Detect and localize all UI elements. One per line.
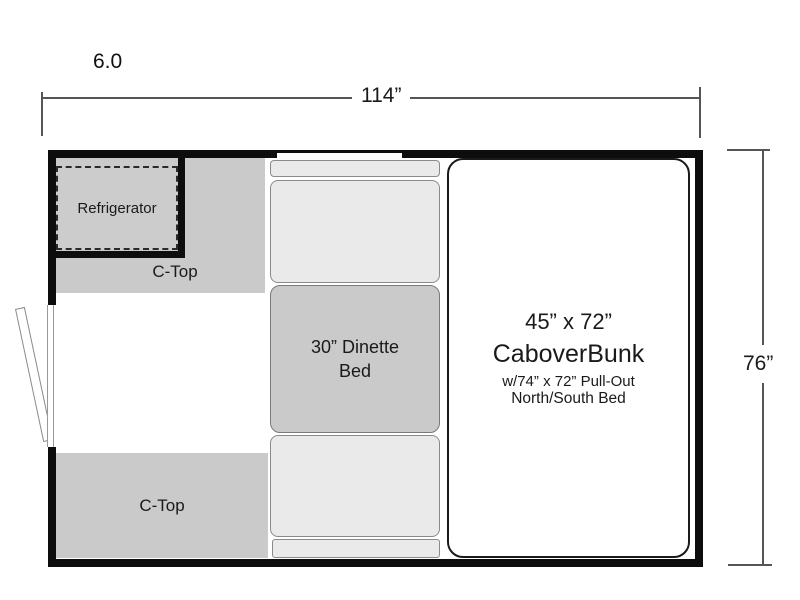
height-dimension-tick-top <box>727 149 770 151</box>
dinette-table-edge-top <box>270 160 440 177</box>
refrigerator: Refrigerator <box>56 166 178 250</box>
counter-edge-horizontal <box>48 251 185 258</box>
dinette-bed-label-line2: Bed <box>339 359 371 383</box>
width-dimension-tick-right <box>699 87 701 138</box>
dinette-bed: 30” Dinette Bed <box>270 285 440 433</box>
dinette-table-edge-bottom <box>272 539 440 558</box>
dinette-seat-lower <box>270 435 440 537</box>
lower-counter-area: C-Top <box>56 453 268 558</box>
bunk-size-label: 45” x 72” <box>525 309 612 335</box>
cabover-bunk: 45” x 72” CaboverBunk w/74” x 72” Pull-O… <box>447 158 690 558</box>
width-dimension-label: 114” <box>352 84 410 108</box>
height-dimension-label: 76” <box>741 345 775 383</box>
counter-edge-vertical <box>178 158 185 258</box>
bunk-name-label: CaboverBunk <box>493 340 644 369</box>
refrigerator-label: Refrigerator <box>77 200 156 217</box>
height-dimension-tick-bottom <box>728 564 772 566</box>
floorplan-canvas: 6.0 114” 76” Refrigerator C-Top C-Top 30… <box>0 0 800 600</box>
lower-ctop-label: C-Top <box>139 496 184 516</box>
width-dimension-tick-left <box>41 92 43 136</box>
model-number-label: 6.0 <box>93 50 122 74</box>
dinette-bed-label-line1: 30” Dinette <box>311 335 399 359</box>
upper-ctop-label: C-Top <box>100 262 250 282</box>
dinette-seat-upper <box>270 180 440 283</box>
door-jamb <box>47 305 54 447</box>
bunk-pullout-label: w/74” x 72” Pull-Out <box>502 373 635 390</box>
window-opening <box>277 153 402 159</box>
bunk-orientation-label: North/South Bed <box>511 390 626 408</box>
